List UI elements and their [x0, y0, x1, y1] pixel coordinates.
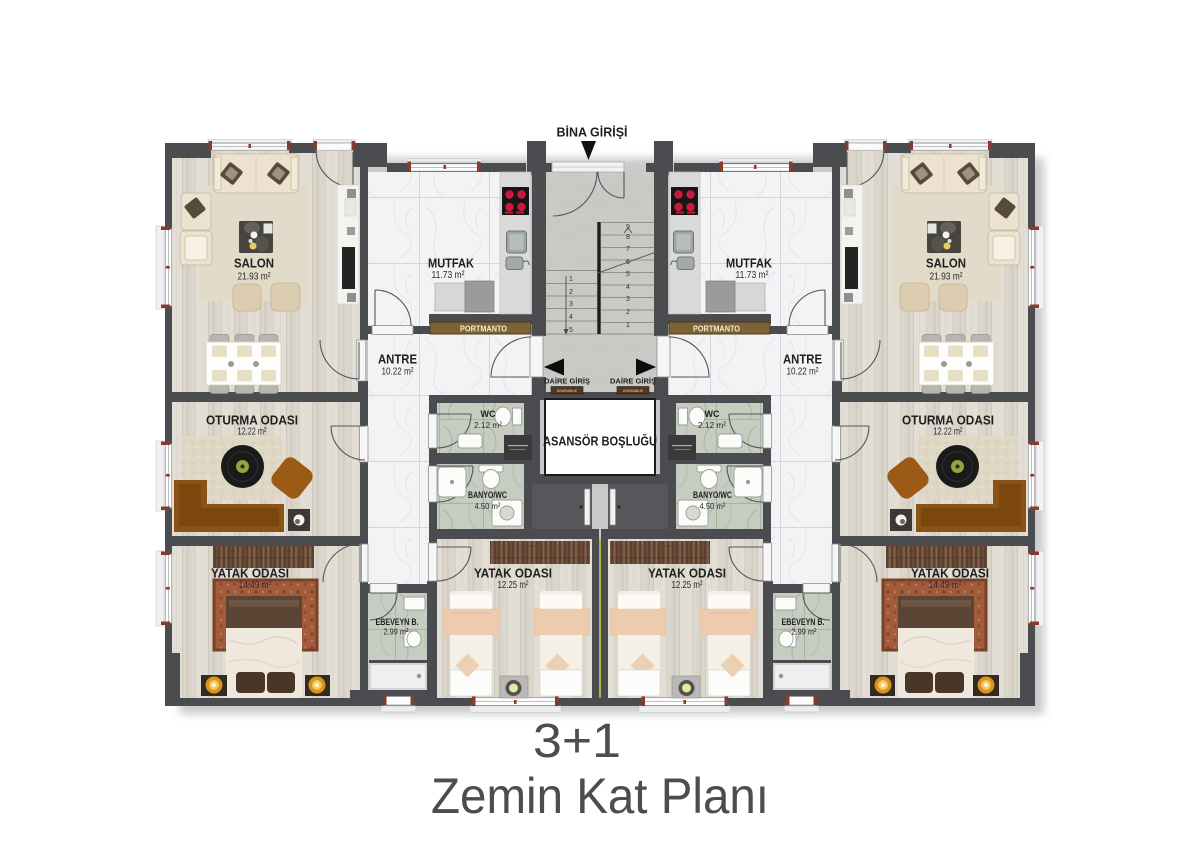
svg-text:PORTMANTO: PORTMANTO — [460, 323, 507, 333]
svg-text:YATAK ODASI: YATAK ODASI — [911, 566, 989, 581]
svg-text:12.25 m²: 12.25 m² — [672, 580, 704, 591]
svg-text:OTURMA ODASI: OTURMA ODASI — [902, 413, 994, 428]
svg-text:WC: WC — [705, 409, 720, 419]
svg-text:BANYO/WC: BANYO/WC — [468, 490, 507, 500]
svg-text:3+1: 3+1 — [533, 715, 621, 768]
svg-text:8: 8 — [626, 234, 630, 241]
svg-text:21.93 m²: 21.93 m² — [238, 272, 272, 283]
svg-text:OTURMA ODASI: OTURMA ODASI — [206, 413, 298, 428]
svg-text:AYAKKABILIK: AYAKKABILIK — [623, 389, 644, 393]
svg-text:1: 1 — [569, 276, 573, 283]
svg-text:EBEVEYN B.: EBEVEYN B. — [782, 617, 825, 627]
svg-text:SALON: SALON — [234, 256, 274, 271]
svg-text:5: 5 — [569, 327, 573, 334]
svg-text:Zemin Kat Planı: Zemin Kat Planı — [431, 768, 769, 824]
svg-text:AYAKKABILIK: AYAKKABILIK — [557, 389, 578, 393]
svg-text:11.73 m²: 11.73 m² — [736, 270, 770, 281]
svg-text:ASANSÖR BOŞLUĞU: ASANSÖR BOŞLUĞU — [543, 434, 657, 449]
svg-text:10.22 m²: 10.22 m² — [787, 367, 820, 378]
svg-text:2.12 m²: 2.12 m² — [698, 420, 726, 430]
svg-text:1: 1 — [626, 322, 630, 329]
svg-text:YATAK ODASI: YATAK ODASI — [474, 566, 552, 581]
svg-text:6: 6 — [626, 259, 630, 266]
svg-text:2: 2 — [626, 309, 630, 316]
svg-text:12.22 m²: 12.22 m² — [934, 427, 963, 438]
svg-text:3: 3 — [626, 296, 630, 303]
svg-text:4: 4 — [626, 284, 630, 291]
svg-text:4: 4 — [569, 314, 573, 321]
svg-text:SALON: SALON — [926, 256, 966, 271]
svg-text:10.22 m²: 10.22 m² — [382, 367, 415, 378]
svg-text:2: 2 — [569, 289, 573, 296]
svg-text:4.50 m²: 4.50 m² — [475, 501, 501, 511]
svg-text:2.99 m²: 2.99 m² — [792, 627, 817, 637]
svg-text:14.49 m²: 14.49 m² — [239, 580, 273, 591]
svg-text:21.93 m²: 21.93 m² — [930, 272, 964, 283]
svg-text:BANYO/WC: BANYO/WC — [693, 490, 732, 500]
svg-text:12.25 m²: 12.25 m² — [498, 580, 530, 591]
svg-text:7: 7 — [626, 246, 630, 253]
svg-text:YATAK ODASI: YATAK ODASI — [648, 566, 726, 581]
svg-text:11.73 m²: 11.73 m² — [432, 270, 466, 281]
svg-text:YATAK ODASI: YATAK ODASI — [211, 566, 289, 581]
svg-text:2.99 m²: 2.99 m² — [384, 627, 409, 637]
svg-text:ANTRE: ANTRE — [783, 352, 822, 367]
svg-text:DAİRE GİRİŞ: DAİRE GİRİŞ — [610, 377, 656, 386]
svg-text:5: 5 — [626, 271, 630, 278]
svg-text:14.49 m²: 14.49 m² — [929, 580, 963, 591]
svg-text:12.22 m²: 12.22 m² — [238, 427, 267, 438]
svg-text:4.50 m²: 4.50 m² — [700, 501, 726, 511]
svg-text:MUTFAK: MUTFAK — [428, 256, 475, 271]
svg-text:WC: WC — [481, 409, 496, 419]
svg-text:3: 3 — [569, 301, 573, 308]
svg-text:BİNA GİRİŞİ: BİNA GİRİŞİ — [557, 125, 628, 140]
svg-text:MUTFAK: MUTFAK — [726, 256, 773, 271]
svg-text:2.12 m²: 2.12 m² — [474, 420, 502, 430]
svg-text:ANTRE: ANTRE — [378, 352, 417, 367]
svg-text:PORTMANTO: PORTMANTO — [693, 323, 740, 333]
svg-text:DAİRE GİRİŞ: DAİRE GİRİŞ — [544, 377, 590, 386]
svg-text:EBEVEYN B.: EBEVEYN B. — [376, 617, 419, 627]
